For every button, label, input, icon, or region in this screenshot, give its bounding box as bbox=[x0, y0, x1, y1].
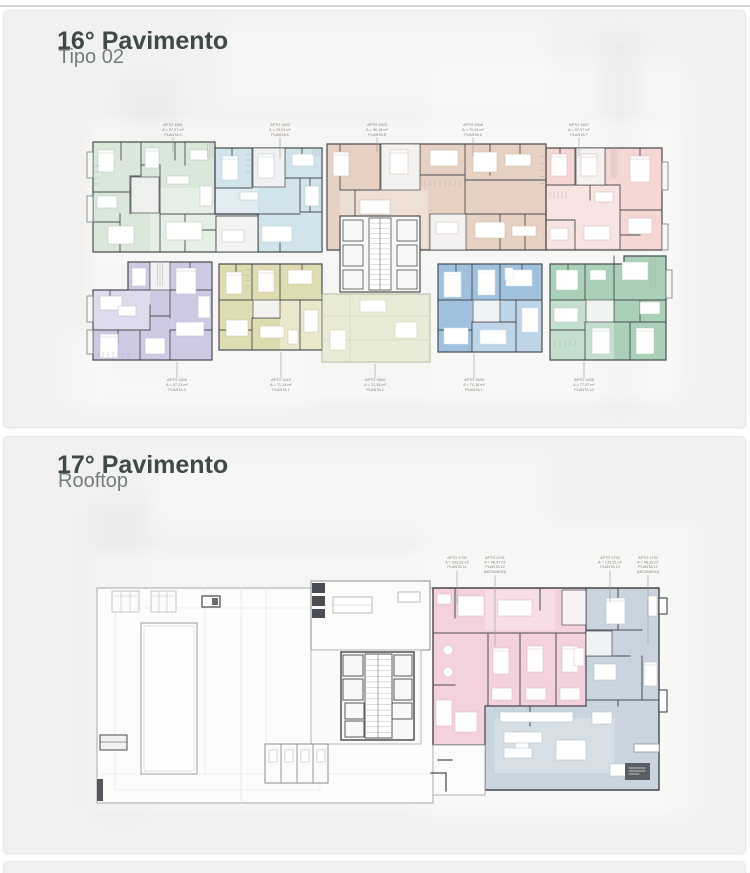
svg-text:APTO 1608: APTO 1608 bbox=[463, 123, 483, 127]
svg-text:PLANTA 10: PLANTA 10 bbox=[574, 388, 594, 392]
svg-text:APTO 1605: APTO 1605 bbox=[464, 378, 484, 382]
svg-text:PLANTA 1: PLANTA 1 bbox=[465, 388, 482, 392]
svg-text:APTO 1602: APTO 1602 bbox=[270, 123, 290, 127]
svg-text:A = 79,24 m²: A = 79,24 m² bbox=[462, 128, 484, 132]
svg-text:A = 233,28 m²: A = 233,28 m² bbox=[445, 561, 469, 565]
svg-text:(MEZANINO): (MEZANINO) bbox=[637, 570, 660, 574]
svg-text:A = 97,97 m²: A = 97,97 m² bbox=[568, 128, 590, 132]
svg-text:APTO 1701: APTO 1701 bbox=[485, 556, 505, 560]
svg-text:APTO 1702: APTO 1702 bbox=[600, 556, 620, 560]
svg-text:A = 77,07 m²: A = 77,07 m² bbox=[573, 383, 595, 387]
svg-text:PLANTA 3: PLANTA 3 bbox=[168, 388, 185, 392]
svg-text:A = 71,15 m²: A = 71,15 m² bbox=[270, 383, 292, 387]
svg-text:A = 135,32 m²: A = 135,32 m² bbox=[598, 561, 622, 565]
svg-text:PLANTA 12: PLANTA 12 bbox=[485, 565, 505, 569]
svg-text:APTO 1604: APTO 1604 bbox=[365, 378, 385, 382]
svg-text:APTO 1601: APTO 1601 bbox=[163, 123, 183, 127]
svg-text:PLANTA 2: PLANTA 2 bbox=[164, 133, 181, 137]
svg-text:PLANTA 6: PLANTA 6 bbox=[271, 133, 288, 137]
svg-text:APTO 1701: APTO 1701 bbox=[447, 556, 467, 560]
svg-text:PLANTA 12: PLANTA 12 bbox=[638, 565, 658, 569]
svg-text:A = 71,15 m²: A = 71,15 m² bbox=[463, 383, 485, 387]
svg-text:PLANTA 13: PLANTA 13 bbox=[600, 565, 620, 569]
svg-text:APTO 1603: APTO 1603 bbox=[367, 123, 387, 127]
svg-text:A = 97,97 m²: A = 97,97 m² bbox=[162, 128, 184, 132]
svg-text:(MEZANINO): (MEZANINO) bbox=[484, 570, 507, 574]
svg-text:APTO 1610: APTO 1610 bbox=[271, 378, 291, 382]
svg-text:A = 48,57 m²: A = 48,57 m² bbox=[484, 561, 506, 565]
svg-text:A = 79,24 m²: A = 79,24 m² bbox=[269, 128, 291, 132]
svg-text:APTO 1702: APTO 1702 bbox=[638, 556, 658, 560]
svg-text:PLANTA 1: PLANTA 1 bbox=[366, 388, 383, 392]
svg-text:PLANTA 7: PLANTA 7 bbox=[570, 133, 587, 137]
svg-text:APTO 1606: APTO 1606 bbox=[574, 378, 594, 382]
svg-text:APTO 1607: APTO 1607 bbox=[569, 123, 589, 127]
svg-text:PLANTA 6: PLANTA 6 bbox=[464, 133, 481, 137]
svg-text:PLANTA 1: PLANTA 1 bbox=[272, 388, 289, 392]
svg-text:A = 48,29 m²: A = 48,29 m² bbox=[637, 561, 659, 565]
svg-text:A = 71,15 m²: A = 71,15 m² bbox=[364, 383, 386, 387]
svg-text:PLANTA 8: PLANTA 8 bbox=[368, 133, 385, 137]
svg-text:APTO 1609: APTO 1609 bbox=[167, 378, 187, 382]
svg-text:PLANTA 11: PLANTA 11 bbox=[447, 565, 466, 569]
svg-text:A = 96,18 m²: A = 96,18 m² bbox=[366, 128, 388, 132]
svg-text:A = 97,23 m²: A = 97,23 m² bbox=[166, 383, 188, 387]
